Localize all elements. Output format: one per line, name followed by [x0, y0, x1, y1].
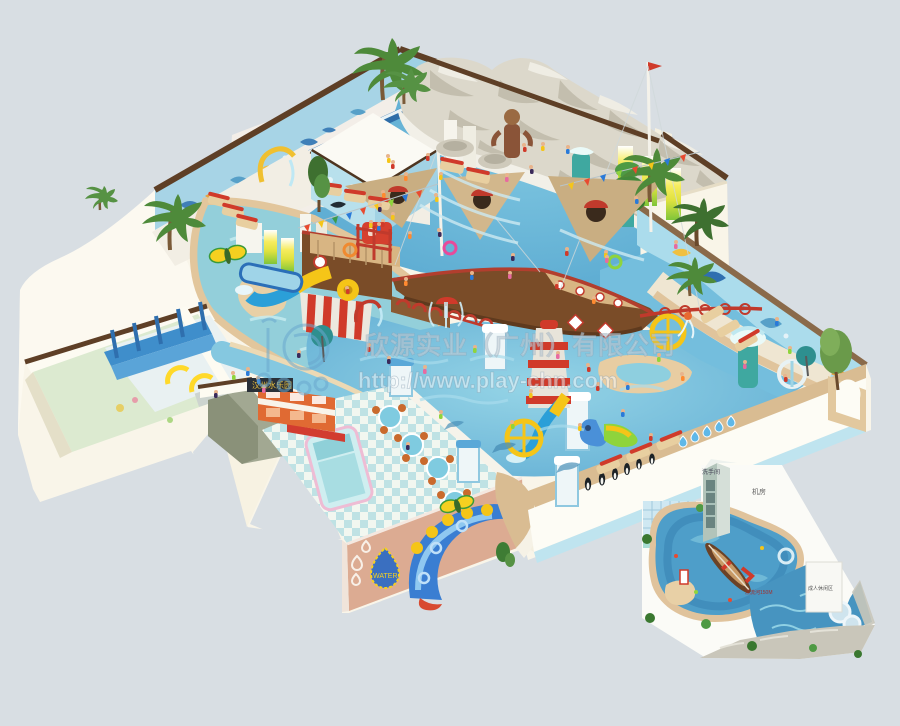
- svg-text:http://www.play-chn.com: http://www.play-chn.com: [358, 368, 618, 393]
- svg-text:漂流河150M: 漂流河150M: [745, 589, 773, 596]
- svg-text:洗手间: 洗手间: [702, 468, 720, 476]
- svg-text:欣源实业（广州）有限公司: 欣源实业（广州）有限公司: [364, 331, 676, 360]
- svg-text:成人休闲区: 成人休闲区: [808, 585, 833, 592]
- svg-text:机房: 机房: [752, 487, 766, 496]
- svg-text:WATER: WATER: [373, 573, 398, 580]
